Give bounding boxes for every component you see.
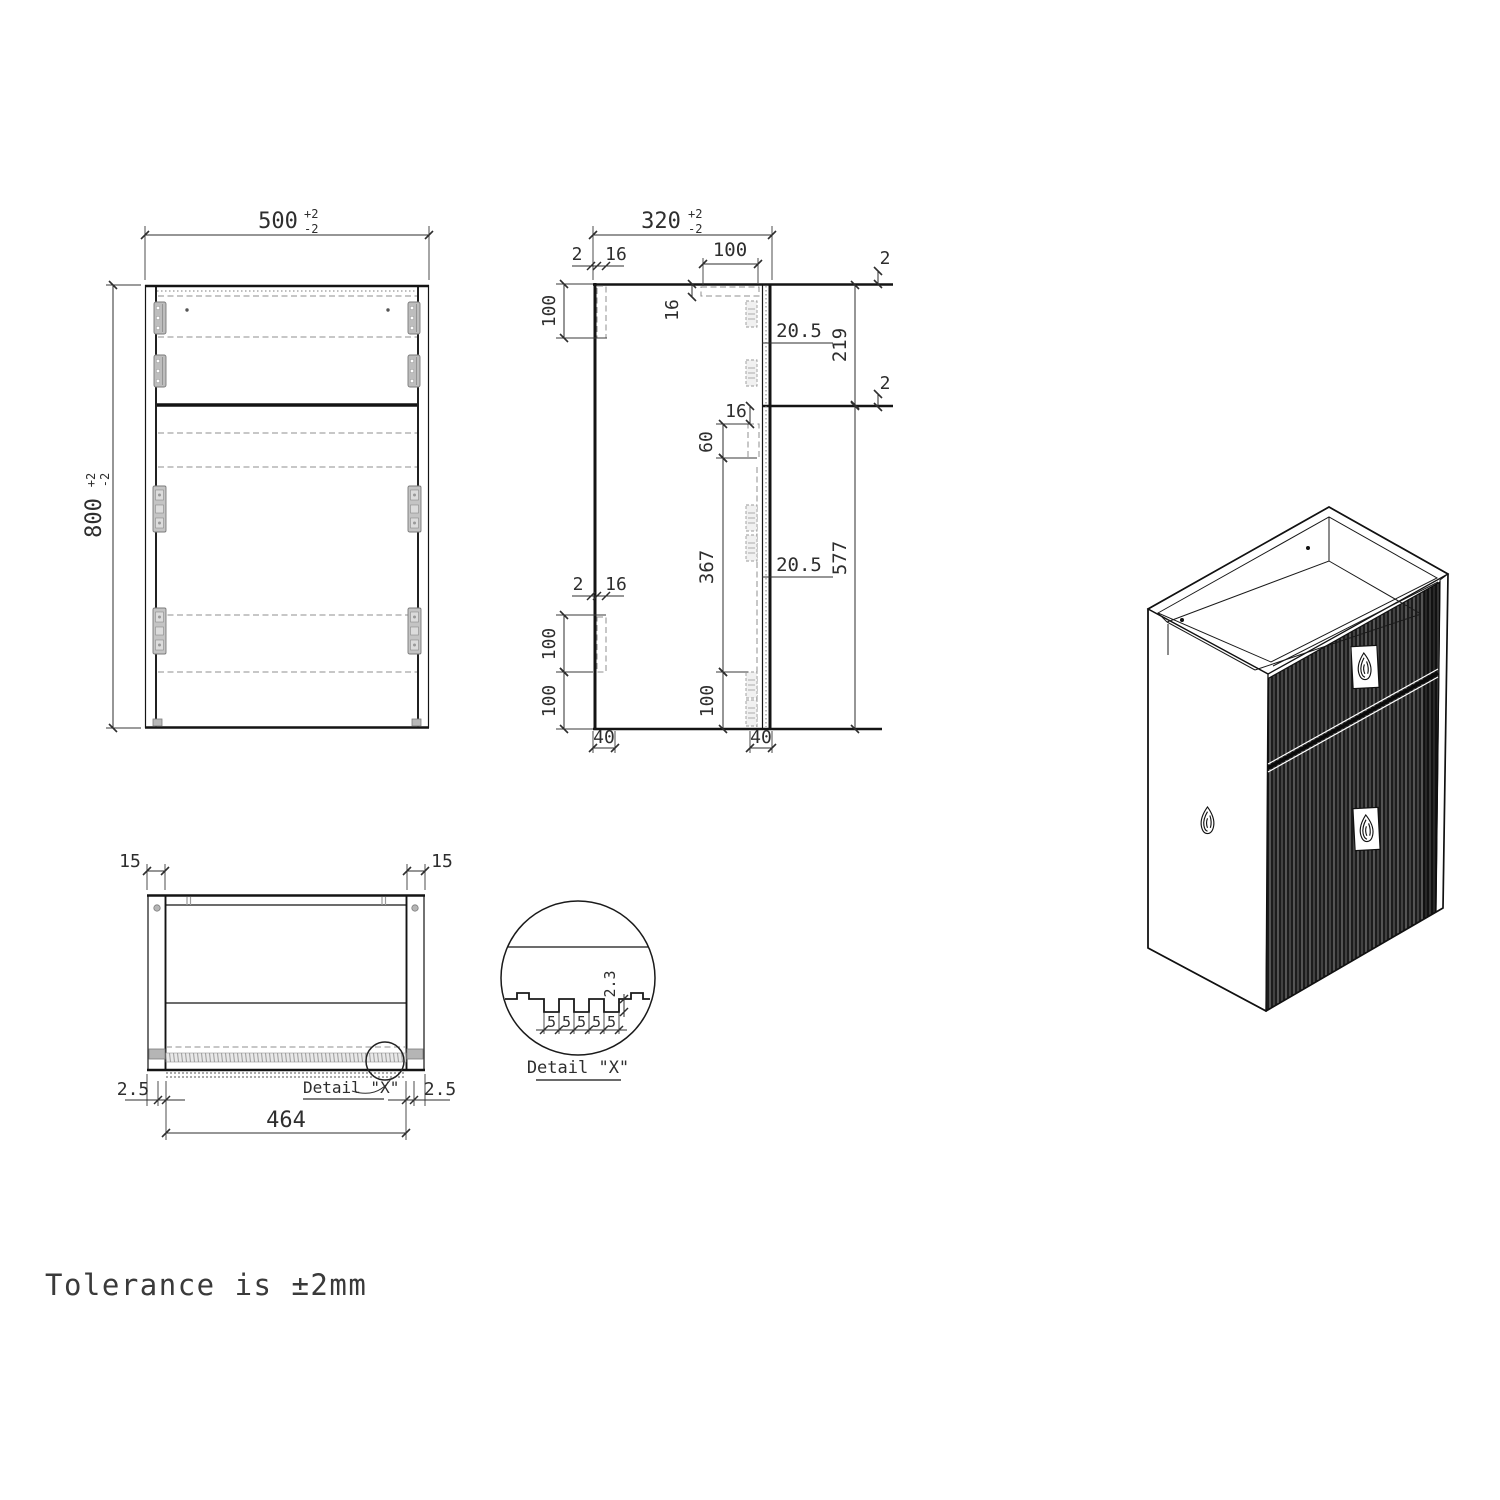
brand-badge	[1351, 645, 1379, 688]
dim-panel-bot-left: 16	[605, 574, 627, 595]
iso-back-dowel	[1306, 546, 1310, 550]
dim-front-height-tol-up: +2	[84, 473, 98, 487]
dim-flute-pitch-5: 5	[607, 1013, 616, 1031]
dim-flute-depth: 2.3	[601, 970, 619, 997]
detail-view: 5 5 5 5 5 2.3 Detail "X"	[501, 901, 655, 1080]
dim-plinth-left: 40	[593, 727, 615, 748]
bottom-view: 15 15 2.5 2.5 464 Detail "X"	[117, 851, 457, 1140]
dim-edge-top-right: 2	[880, 248, 891, 269]
dim-edge-mid-right: 2	[880, 373, 891, 394]
dim-back-bracket-bot-len: 100	[539, 628, 560, 661]
technical-drawing-canvas: 500 +2 -2 800 +2 -2	[0, 0, 1500, 1500]
detail-callout-label: Detail "X"	[303, 1078, 399, 1097]
dim-edge-top-left: 2	[572, 244, 583, 265]
dim-panel-top-left: 16	[605, 244, 627, 265]
dim-back-bracket-bot-off: 100	[539, 685, 560, 718]
dim-flute-pitch-1: 5	[547, 1013, 556, 1031]
flute-profile	[505, 993, 650, 1012]
bottom-view-dimensions: 15 15 2.5 2.5 464	[117, 851, 457, 1133]
front-view: 500 +2 -2 800 +2 -2	[82, 207, 429, 728]
dim-front-width-tol-dn: -2	[304, 222, 318, 236]
dim-side-depth-tol-up: +2	[688, 207, 702, 221]
dim-front-height-tol-dn: -2	[98, 473, 112, 487]
dim-front-panel-width: 464	[266, 1108, 306, 1133]
side-view: 320 +2 -2 2 16 100 100 16 20.5 219 2 2 1…	[539, 207, 893, 753]
dim-front-bracket-bot-off: 100	[697, 685, 718, 718]
dim-front-height: 800	[82, 498, 107, 538]
detail-view-circle	[501, 901, 655, 1055]
dim-gap-bottom: 20.5	[776, 554, 822, 576]
dim-front-bracket-drop: 16	[662, 299, 683, 321]
dim-front-width: 500	[258, 209, 298, 234]
front-view-hinge-hardware	[153, 302, 421, 726]
dim-slide-len: 60	[696, 431, 717, 453]
dim-front-bracket-inset: 100	[713, 239, 747, 261]
dim-flute-pitch-2: 5	[562, 1013, 571, 1031]
front-view-hidden-lines	[158, 296, 417, 672]
dim-front-width-tol-up: +2	[304, 207, 318, 221]
dim-back-bracket-top: 100	[539, 295, 560, 328]
dim-slide-drop: 16	[725, 401, 747, 422]
dim-flute-pitch-4: 5	[592, 1013, 601, 1031]
dim-flute-pitch-3: 5	[577, 1013, 586, 1031]
dim-gap-left: 2.5	[117, 1079, 150, 1100]
dim-gap-top: 20.5	[776, 320, 822, 342]
dim-side-thickness-right: 15	[431, 851, 453, 872]
dim-side-depth: 320	[641, 209, 681, 234]
iso-back-dowel	[1180, 618, 1184, 622]
dim-side-depth-tol-dn: -2	[688, 222, 702, 236]
isometric-view	[1148, 507, 1448, 1011]
side-view-hidden-parts	[597, 286, 759, 727]
iso-left-face	[1148, 609, 1268, 1011]
bottom-view-outline	[147, 895, 425, 1077]
detail-view-dimensions: 5 5 5 5 5 2.3	[536, 970, 628, 1034]
front-view-cabinet-outline	[145, 285, 429, 728]
side-view-dimensions: 320 +2 -2 2 16 100 100 16 20.5 219 2 2 1…	[539, 207, 890, 748]
brand-badge	[1353, 807, 1380, 850]
dim-plinth-right: 40	[750, 727, 772, 748]
dim-mid-span: 367	[696, 550, 718, 584]
dim-gap-right: 2.5	[424, 1079, 457, 1100]
dim-upper-zone: 219	[829, 328, 851, 362]
tolerance-note: Tolerance is ±2mm	[45, 1268, 367, 1302]
vanity-unit-drawing: 500 +2 -2 800 +2 -2	[0, 0, 1500, 1500]
dim-edge-bot-left: 2	[573, 574, 584, 595]
detail-view-title: Detail "X"	[527, 1058, 629, 1078]
dim-side-thickness-left: 15	[119, 851, 141, 872]
dim-lower-zone: 577	[829, 541, 851, 575]
dowel-hole	[386, 308, 389, 311]
dowel-hole	[185, 308, 188, 311]
